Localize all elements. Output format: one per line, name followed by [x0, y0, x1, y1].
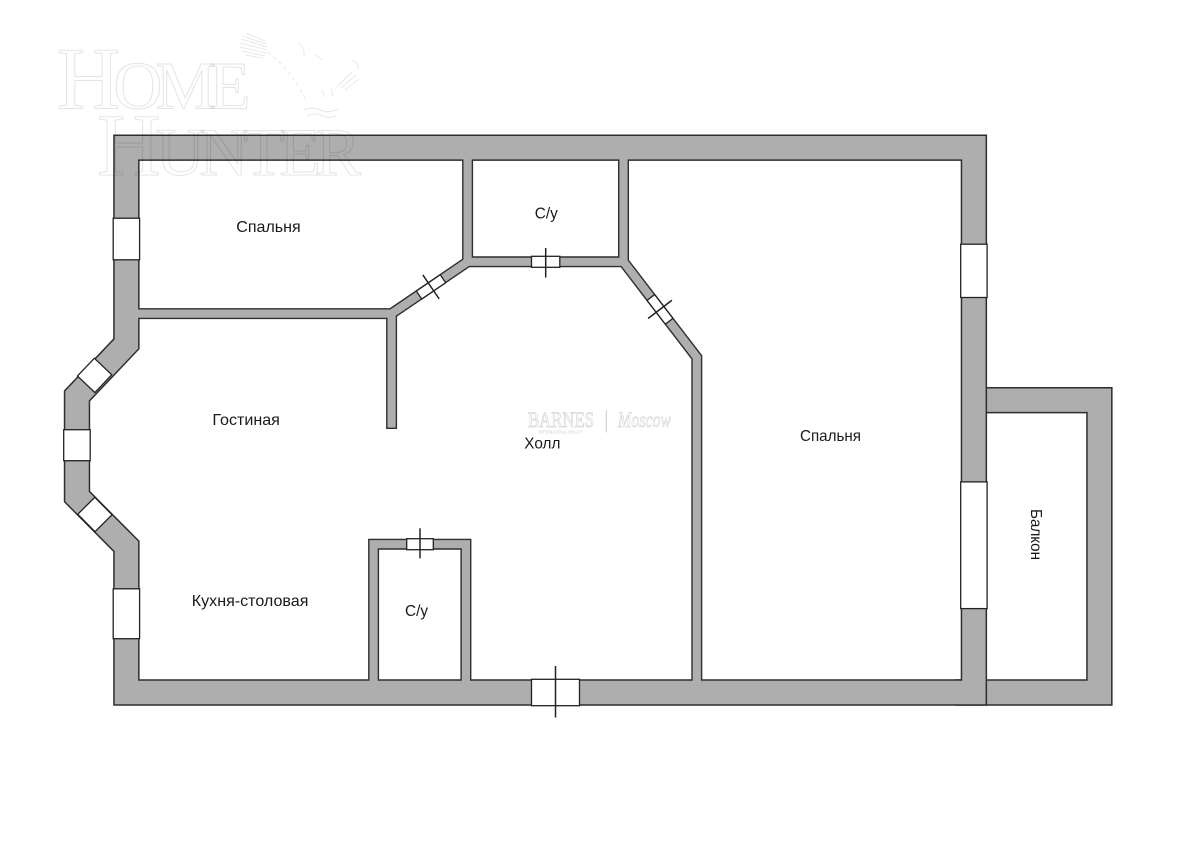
svg-text:INTERNATIONAL REALTY: INTERNATIONAL REALTY — [539, 430, 582, 435]
svg-text:Спальня: Спальня — [236, 219, 300, 236]
svg-text:Гостиная: Гостиная — [212, 412, 280, 429]
svg-text:Холл: Холл — [524, 436, 560, 453]
svg-text:С/у: С/у — [535, 206, 558, 223]
svg-text:Кухня-столовая: Кухня-столовая — [192, 593, 309, 610]
svg-text:С/у: С/у — [405, 603, 428, 620]
svg-text:BARNES: BARNES — [528, 407, 594, 432]
svg-text:Балкон: Балкон — [1027, 509, 1044, 560]
svg-text:Moscow: Moscow — [617, 407, 671, 432]
svg-text:Спальня: Спальня — [800, 428, 861, 445]
